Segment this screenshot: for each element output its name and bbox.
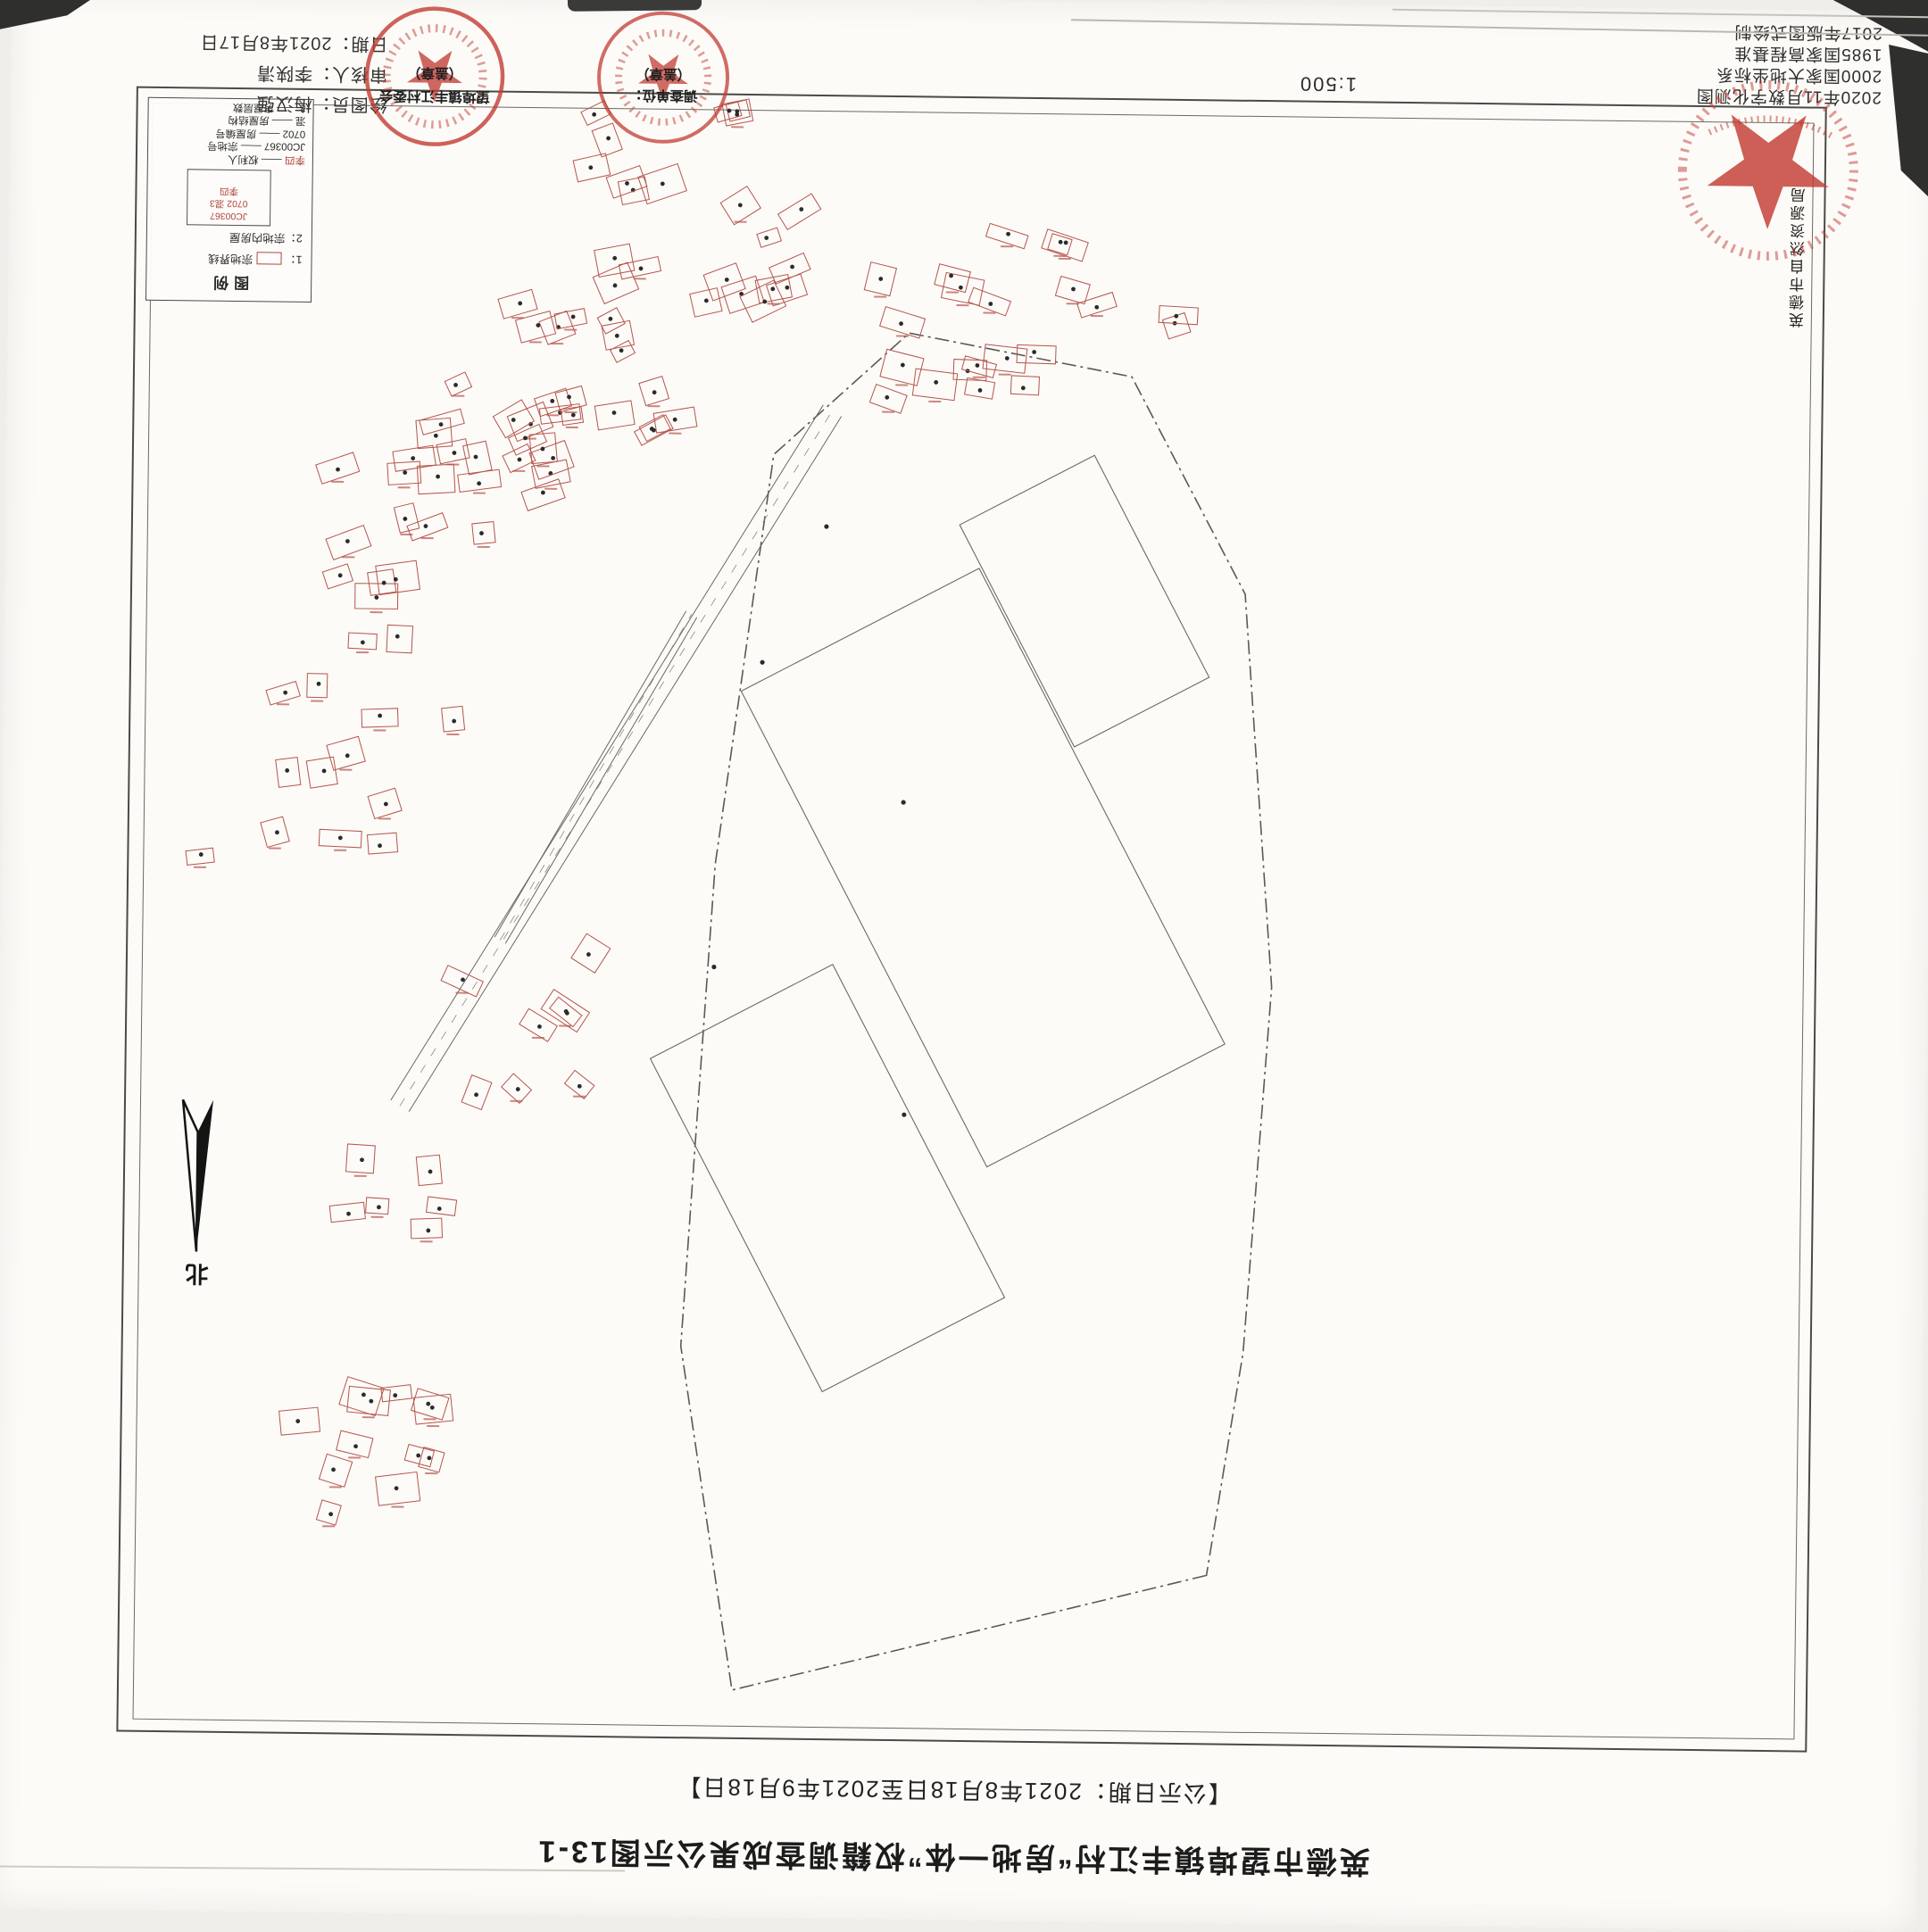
parcel-boundary-swatch: [256, 253, 281, 265]
parcel-cluster: [493, 289, 699, 446]
parcel-cluster: [571, 97, 822, 324]
scanned-paper-sheet: 英德市望埠镇丰江村“房地一体”权籍调查成果公示图13-1 【公示日期：2021年…: [0, 0, 1928, 1932]
parcel-cluster: [261, 735, 403, 855]
sample-owner-name: 李四: [187, 184, 270, 197]
parcel-cluster: [863, 222, 1092, 416]
scanned-notice-map-photo: { "page": { "title": "英德市望埠镇丰江村“房地一体”权籍调…: [0, 0, 1928, 1920]
sample-house-code: 0702 混3: [187, 196, 270, 210]
parcel-cluster: [265, 559, 466, 734]
parcel-cluster: [415, 371, 587, 511]
note-height-datum: 1985国家高程基准: [1696, 41, 1882, 65]
legend-item1-number: 1：: [285, 253, 303, 266]
note-datum: 2000国家大地坐标系: [1696, 62, 1882, 87]
authority-name-vertical: 英德市自然资源局: [1787, 95, 1812, 328]
north-label: 北: [151, 1258, 240, 1292]
legend-sample-parcel: JC00367 0702 混3 李四: [187, 169, 271, 226]
reviewer-line: 审核人：李陕清: [199, 56, 387, 89]
map-scale: 1:500: [1299, 72, 1357, 96]
date-line: 日期：2021年8月17日: [199, 26, 387, 59]
credits-block: 绘图员：梅汉强 审核人：李陕清 日期：2021年8月17日: [199, 26, 388, 120]
legend-item2-label: 宗地内房屋: [229, 231, 286, 245]
parcel-cluster: [186, 848, 215, 867]
legend-item2-number: 2：: [285, 232, 303, 245]
legend-item-houses: 2：宗地内房屋: [229, 230, 303, 248]
legend-title: 图例: [146, 272, 311, 296]
legend-item-parcel-boundary: 1：宗地界线: [208, 252, 303, 269]
photo-edge-top-center: [568, 0, 702, 12]
drafter-line: 绘图员：梅汉强: [199, 87, 387, 120]
north-arrow-icon: [152, 1080, 243, 1259]
parcel-cluster: [329, 1144, 458, 1242]
parcel-cluster: [314, 407, 496, 561]
north-arrow: 北: [151, 1086, 243, 1292]
legend-item1-label: 宗地界线: [208, 253, 253, 266]
sample-parcel-number: JC00367: [187, 209, 270, 222]
legend-box: 图例 1：宗地界线 2：宗地内房屋 JC00367 0702 混3 李四 李四 …: [145, 97, 314, 303]
parcel-cluster: [1076, 292, 1198, 339]
parcel-cluster: [278, 1376, 453, 1528]
